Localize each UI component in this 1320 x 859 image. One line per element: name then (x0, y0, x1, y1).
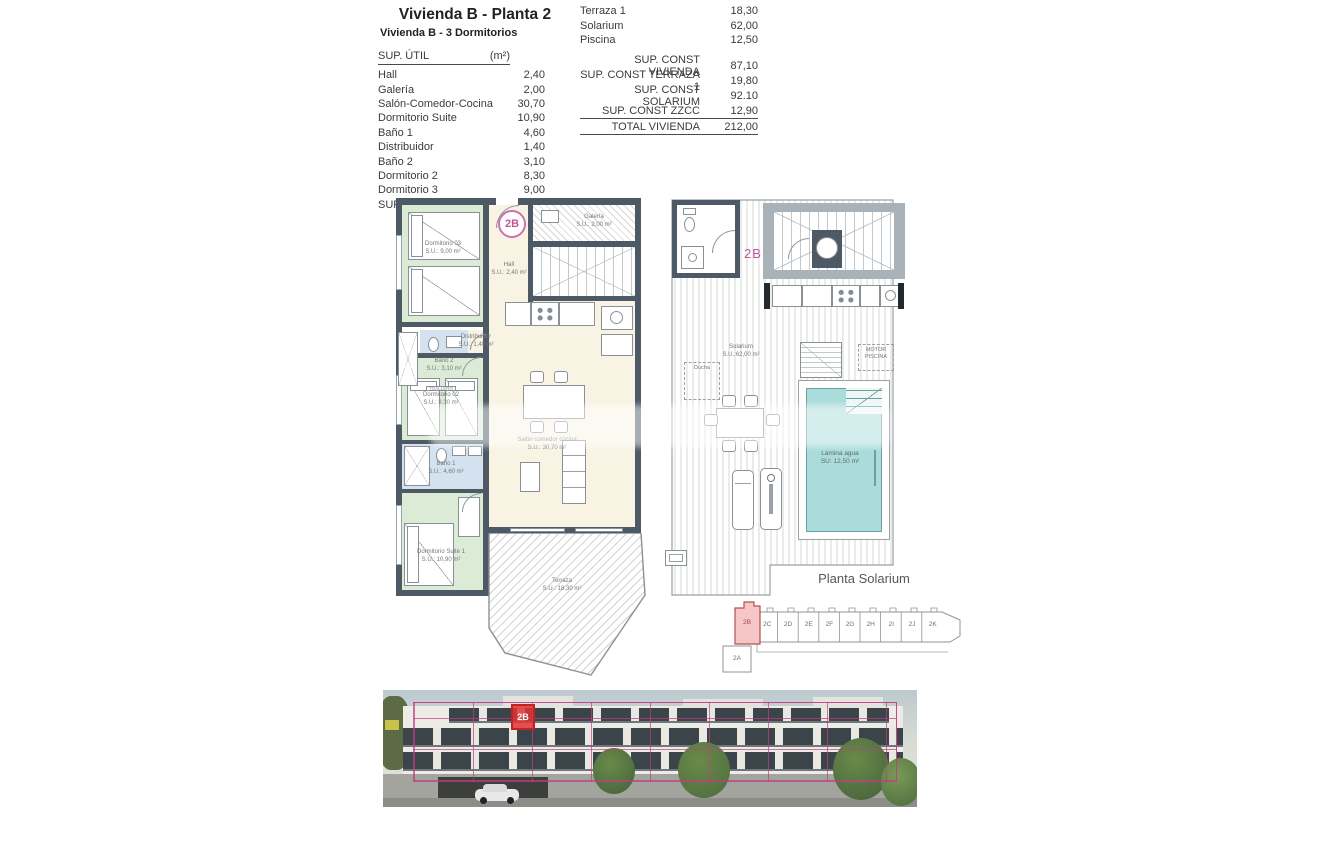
wall-segment (396, 590, 489, 596)
elevator-icon (816, 237, 838, 259)
room-label: Baño 1S.U.: 4,60 m² (428, 461, 463, 477)
row-label: Salón-Comedor-Cocina (378, 98, 497, 110)
fridge-icon (505, 302, 531, 326)
table-row: Dormitorio 39,00 (378, 183, 545, 197)
drain-icon (688, 253, 697, 262)
row-value: 18,30 (710, 5, 758, 17)
column-icon (764, 283, 770, 309)
window-icon (396, 505, 402, 565)
watermark (430, 405, 890, 447)
sliding-door-icon (575, 528, 623, 532)
table-row: Salón-Comedor-Cocina30,70 (378, 97, 545, 111)
bed-icon (408, 266, 480, 316)
table-row: Galería2,00 (378, 82, 545, 96)
coffee-table-icon (520, 462, 540, 492)
plan-sheet: Vivienda B - Planta 2 Vivienda B - 3 Dor… (0, 0, 1320, 859)
sup-util-table: SUP. ÚTIL (m²) Hall2,40 Galería2,00 Saló… (378, 50, 545, 212)
row-value: 92.10 (712, 90, 758, 102)
room-label: SolariumS.U.:62,00 m² (722, 344, 759, 360)
row-label: Dormitorio 3 (378, 184, 497, 196)
sink-icon (452, 446, 466, 456)
dishwasher-icon (601, 334, 633, 356)
table-row: Distribuidor1,40 (378, 140, 545, 154)
row-value: 87,10 (712, 60, 758, 72)
sup-util-header-unit: (m²) (490, 50, 510, 62)
const-table: SUP. CONST VIVIENDA87,10 SUP. CONST TERR… (580, 58, 758, 135)
key-plan-units: 2C 2D 2E 2F 2G 2H 2I 2J 2K (757, 621, 943, 628)
key-plan-unit: 2K (922, 621, 943, 628)
page-title: Vivienda B - Planta 2 (395, 6, 555, 24)
row-value: 10,90 (497, 112, 545, 124)
row-label: Terraza 1 (580, 5, 710, 17)
table-row: Terraza 118,30 (580, 4, 758, 18)
exterior-areas-table: Terraza 118,30 Solarium62,00 Piscina12,5… (580, 4, 758, 47)
sup-util-header-label: SUP. ÚTIL (378, 50, 429, 62)
key-plan-unit: 2E (798, 621, 819, 628)
key-plan-unit: 2H (860, 621, 881, 628)
sliding-door-icon (510, 528, 565, 532)
table-row: Baño 23,10 (378, 154, 545, 168)
row-value: 8,30 (497, 170, 545, 182)
table-row: Piscina12,50 (580, 33, 758, 47)
room-label: DistribuidorS.U.: 1,40 m² (458, 334, 493, 350)
page-subtitle: Vivienda B - 3 Dormitorios (380, 27, 517, 39)
key-plan-unit: 2I (881, 621, 902, 628)
room-label: Ducha (694, 365, 710, 372)
row-label: Baño 1 (378, 127, 497, 139)
counter-icon (860, 285, 880, 307)
room-label: MOTOR PISCINA (860, 347, 892, 361)
wall-segment (528, 296, 635, 301)
toilet-icon (428, 337, 439, 352)
wall-segment (533, 241, 635, 247)
stairs-icon (800, 342, 842, 378)
row-label: Dormitorio Suite (378, 112, 497, 124)
sink-basin-icon (610, 311, 623, 324)
row-value: 1,40 (497, 141, 545, 153)
unit-badge: 2B (498, 210, 526, 238)
row-label: Dormitorio 2 (378, 170, 497, 182)
person-icon (767, 474, 775, 482)
terrace (487, 533, 649, 679)
table-row: Dormitorio Suite10,90 (378, 111, 545, 125)
row-label: Distribuidor (378, 141, 497, 153)
toilet-icon (684, 217, 695, 232)
row-value: 4,60 (497, 127, 545, 139)
row-value: 19,80 (712, 75, 758, 87)
sink-icon (468, 446, 482, 456)
wall-segment (518, 198, 641, 205)
counter-icon (772, 285, 802, 307)
shower-icon (404, 446, 430, 486)
room-label: GaleríaS.U.: 2,00 m² (576, 214, 611, 230)
row-label: Piscina (580, 34, 710, 46)
pool-ladder-icon (874, 450, 884, 486)
person-body-icon (769, 484, 773, 514)
row-value: 9,00 (497, 184, 545, 196)
wall-segment (396, 322, 483, 327)
toilet-tank-icon (683, 208, 696, 215)
column-icon (898, 283, 904, 309)
unit-grid-overlay (413, 702, 897, 782)
key-plan-unit: 2C (757, 621, 778, 628)
chair-icon (554, 371, 568, 383)
room-label: Baño 2S.U.: 3,10 m² (426, 358, 461, 374)
plan-caption: Planta Solarium (818, 571, 910, 586)
sink-basin-icon (885, 290, 896, 301)
room-label: Dormitorio Suite 1S.U.: 10,90 m² (417, 549, 465, 565)
window-icon (396, 235, 402, 290)
hob-burners-icon (534, 305, 556, 323)
unit-badge: 2B (744, 246, 762, 261)
row-value: 30,70 (497, 98, 545, 110)
row-value: 2,40 (497, 69, 545, 81)
room-label: Dormitorio 03S.U.: 9,00 m² (425, 241, 461, 257)
row-label: Galería (378, 84, 497, 96)
wall-segment (528, 204, 533, 302)
car-cabin (483, 784, 507, 792)
highlighted-unit-badge: 2B (511, 704, 535, 730)
row-label: Baño 2 (378, 156, 497, 168)
kitchen-counter (559, 302, 595, 326)
key-plan-unit: 2J (902, 621, 923, 628)
chair-icon (530, 371, 544, 383)
row-label: Solarium (580, 20, 710, 32)
hob-burners-icon (835, 287, 857, 305)
table-row: Baño 14,60 (378, 126, 545, 140)
key-plan-unit: 2A (733, 655, 741, 662)
room-label: TerrazaS.U.: 18,30 m² (543, 578, 582, 594)
key-plan-highlight-label: 2B (743, 619, 751, 626)
car-wheel (480, 797, 487, 804)
key-plan-unit: 2F (819, 621, 840, 628)
sup-util-header: SUP. ÚTIL (m²) (378, 50, 510, 65)
sign (385, 720, 399, 730)
wall-segment (396, 489, 483, 493)
car-wheel (507, 797, 514, 804)
planter-icon (665, 550, 687, 566)
room-label: Lámina aguaSU: 12,50 m² (821, 450, 859, 467)
row-value: 12,50 (710, 34, 758, 46)
building-photo: 2B (383, 690, 917, 807)
counter-icon (802, 285, 832, 307)
row-label: Hall (378, 69, 497, 81)
row-value: 2,00 (497, 84, 545, 96)
row-label: SUP. CONST ZZCC (580, 105, 712, 117)
row-value: 62,00 (710, 20, 758, 32)
shower-icon (398, 332, 418, 386)
table-row: Hall2,40 (378, 68, 545, 82)
washer-icon (541, 210, 559, 223)
table-row: SUP. CONST ZZCC12,90 (580, 103, 758, 119)
key-plan-outline (718, 598, 968, 678)
room-label: HallS.U.: 2,40 m² (491, 262, 526, 278)
row-value: 12,90 (712, 105, 758, 117)
wall-segment (483, 204, 489, 533)
row-value: 3,10 (497, 156, 545, 168)
table-row: Solarium62,00 (580, 18, 758, 32)
road (383, 798, 917, 807)
table-total-row: TOTAL VIVIENDA212,00 (580, 119, 758, 135)
sun-lounger-icon (732, 470, 754, 530)
key-plan-unit: 2G (840, 621, 861, 628)
row-label: TOTAL VIVIENDA (580, 121, 712, 133)
row-value: 212,00 (712, 121, 758, 133)
room-label: TOALLERO (429, 386, 453, 392)
table-row: SUP. CONST SOLARIUM92.10 (580, 88, 758, 103)
wall-segment (396, 198, 496, 205)
table-row: Dormitorio 28,30 (378, 169, 545, 183)
key-plan-unit: 2D (778, 621, 799, 628)
stairs-icon (533, 247, 635, 296)
wall-segment (635, 198, 641, 533)
